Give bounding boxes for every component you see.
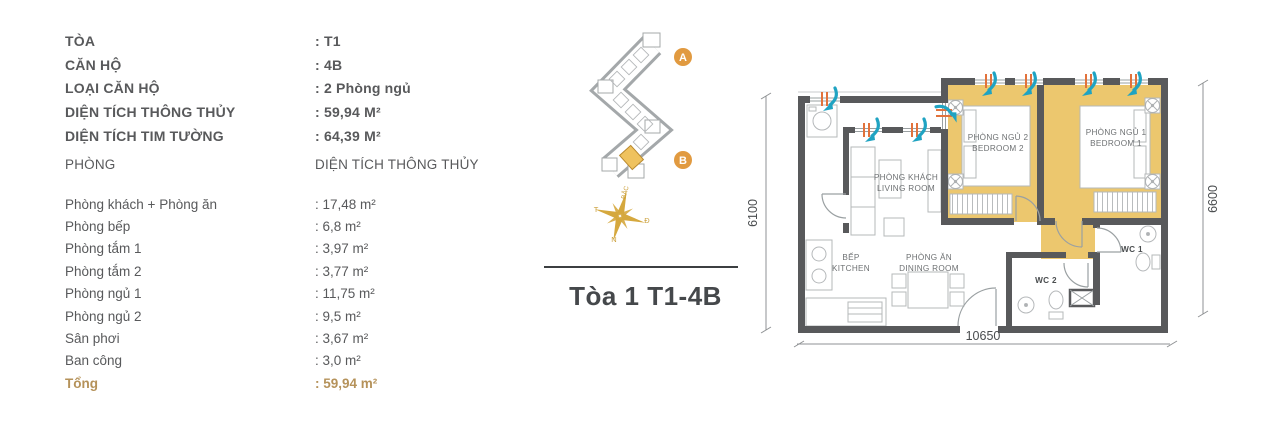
- technical-shaft: [1070, 290, 1094, 306]
- table-row: Ban công : 3,0 m²: [65, 350, 505, 372]
- spec-label: LOẠI CĂN HỘ: [65, 80, 315, 96]
- apartment-spec-page: TÒA : T1 CĂN HỘ : 4B LOẠI CĂN HỘ : 2 Phò…: [0, 0, 1280, 438]
- washing-machine-icon: [807, 105, 837, 137]
- table-row: Sân phơi : 3,67 m²: [65, 327, 505, 349]
- spec-label: CĂN HỘ: [65, 57, 315, 73]
- room-name: Ban công: [65, 353, 315, 368]
- room-name: Phòng tắm 2: [65, 264, 315, 279]
- compass-north-label: BẮC: [619, 184, 631, 200]
- unit-spec-table: TÒA : T1 CĂN HỘ : 4B LOẠI CĂN HỘ : 2 Phò…: [65, 29, 505, 148]
- spec-value: : 64,39 M²: [315, 128, 505, 144]
- spec-row: CĂN HỘ : 4B: [65, 53, 505, 77]
- room-area: : 3,77 m²: [315, 264, 505, 279]
- spec-row: DIỆN TÍCH TIM TƯỜNG : 64,39 M²: [65, 124, 505, 148]
- dimension-bottom: 10650: [966, 329, 1001, 343]
- room-header-area: DIỆN TÍCH THÔNG THỦY: [315, 157, 505, 172]
- tower-floorplate: [598, 33, 660, 178]
- room-area: : 3,97 m²: [315, 241, 505, 256]
- dining-label-en: DINING ROOM: [899, 264, 959, 273]
- table-row: Phòng tắm 2 : 3,77 m²: [65, 260, 505, 282]
- spec-label: TÒA: [65, 33, 315, 49]
- compass-west-label: T: [594, 205, 599, 214]
- bedroom2-label-vi: PHÒNG NGỦ 2: [968, 131, 1029, 142]
- title-divider: [544, 266, 738, 268]
- spec-row: DIỆN TÍCH THÔNG THỦY : 59,94 M²: [65, 100, 505, 124]
- room-area: : 3,67 m²: [315, 331, 505, 346]
- bedroom1-label-vi: PHÒNG NGỦ 1: [1086, 126, 1147, 137]
- total-label: Tổng: [65, 376, 315, 391]
- table-row: Phòng ngủ 2 : 9,5 m²: [65, 305, 505, 327]
- spec-label: DIỆN TÍCH THÔNG THỦY: [65, 104, 315, 120]
- marker-a: A: [674, 48, 692, 66]
- bedroom2-label-en: BEDROOM 2: [972, 144, 1024, 153]
- spec-value: : 2 Phòng ngủ: [315, 80, 505, 96]
- wc1-label: WC 1: [1121, 245, 1143, 254]
- building-locator-map: A B BẮC T Đ N: [555, 20, 745, 260]
- room-name: Phòng tắm 1: [65, 241, 315, 256]
- spec-value: : 59,94 M²: [315, 104, 505, 120]
- dimension-left: 6100: [746, 199, 760, 227]
- dimension-right: 6600: [1206, 185, 1220, 213]
- total-area: : 59,94 m²: [315, 376, 505, 391]
- spec-row: LOẠI CĂN HỘ : 2 Phòng ngủ: [65, 77, 505, 101]
- room-name: Phòng ngủ 2: [65, 309, 315, 324]
- spec-label: DIỆN TÍCH TIM TƯỜNG: [65, 128, 315, 144]
- room-name: Phòng ngủ 1: [65, 286, 315, 301]
- room-area: : 9,5 m²: [315, 309, 505, 324]
- page-title: Tòa 1 T1-4B: [543, 281, 748, 312]
- kitchen-label-en: KITCHEN: [832, 264, 870, 273]
- table-row: Phòng tắm 1 : 3,97 m²: [65, 238, 505, 260]
- room-area: : 11,75 m²: [315, 286, 505, 301]
- room-name: Phòng khách + Phòng ăn: [65, 197, 315, 212]
- table-row: Phòng khách + Phòng ăn : 17,48 m²: [65, 193, 505, 215]
- marker-b-label: B: [679, 155, 687, 167]
- spec-row: TÒA : T1: [65, 29, 505, 53]
- room-name: Sân phơi: [65, 331, 315, 346]
- table-row: Phòng bếp : 6,8 m²: [65, 215, 505, 237]
- kitchen-label-vi: BẾP: [842, 252, 860, 262]
- room-header-name: PHÒNG: [65, 157, 315, 172]
- room-name: Phòng bếp: [65, 219, 315, 234]
- living-room-label-en: LIVING ROOM: [877, 184, 935, 193]
- living-room-label-vi: PHÒNG KHÁCH: [874, 172, 938, 182]
- compass-rose: BẮC T Đ N: [588, 184, 652, 248]
- bedroom1-label-en: BEDROOM 1: [1090, 139, 1142, 148]
- wc2-label: WC 2: [1035, 276, 1057, 285]
- spec-value: : T1: [315, 33, 505, 49]
- floor-plan: PHÒNG KHÁCH LIVING ROOM BẾP KITCHEN PHÒN…: [740, 55, 1280, 385]
- table-row-total: Tổng : 59,94 m²: [65, 372, 505, 394]
- room-area: : 6,8 m²: [315, 219, 505, 234]
- spec-value: : 4B: [315, 57, 505, 73]
- marker-b: B: [674, 151, 692, 169]
- marker-a-label: A: [679, 52, 687, 64]
- table-row: Phòng ngủ 1 : 11,75 m²: [65, 283, 505, 305]
- room-table-header: PHÒNG DIỆN TÍCH THÔNG THỦY: [65, 157, 505, 172]
- compass-east-label: Đ: [644, 216, 650, 225]
- room-area-table: Phòng khách + Phòng ăn : 17,48 m² Phòng …: [65, 193, 505, 395]
- room-area: : 17,48 m²: [315, 197, 505, 212]
- room-area: : 3,0 m²: [315, 353, 505, 368]
- dining-label-vi: PHÒNG ĂN: [906, 252, 952, 262]
- compass-south-label: N: [611, 235, 616, 244]
